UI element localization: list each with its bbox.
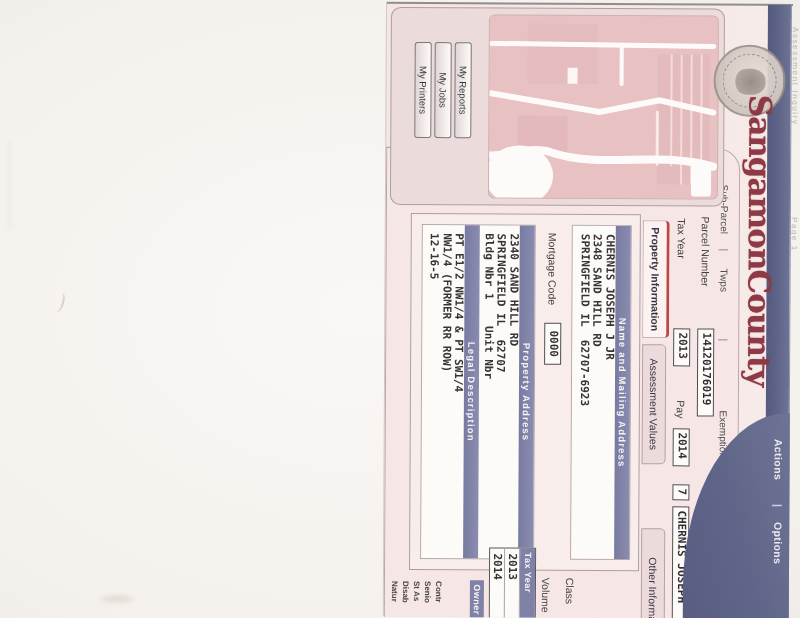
column-label-twps: Twps	[718, 269, 729, 292]
tax-year-table-header: Tax Year	[520, 549, 535, 618]
report-sidebar-window: My Reports My Jobs My Printers	[390, 7, 725, 207]
owner-section-header: Owner	[470, 580, 484, 618]
scanned-document: Assessment Inquiry Page 1 Actions | Opti…	[0, 0, 800, 618]
pay-year-field[interactable]: 2014	[673, 428, 690, 466]
parcel-number-label: Parcel Number	[700, 216, 712, 286]
print-header-page-number: Page 1	[790, 217, 799, 252]
legal-line-3: 12-16-5	[426, 225, 440, 558]
map-graphic	[488, 15, 718, 199]
label-separator: |	[718, 339, 729, 342]
flag-senior: Senio	[422, 581, 433, 603]
flag-disabled: Disab	[400, 581, 411, 603]
my-printers-button[interactable]: My Printers	[414, 42, 432, 138]
mailing-city-line: SPRINGFIELD IL 62707-6923	[576, 226, 590, 559]
property-address-header: Property Address	[518, 226, 535, 559]
exemption-flag-labels: Contr Senio St As Disab Natur	[389, 581, 444, 603]
name-mailing-address-section: Name and Mailing Address CHERNIS JOSEPH …	[570, 225, 632, 560]
my-jobs-button[interactable]: My Jobs	[434, 42, 452, 138]
tax-year-label: Tax Year	[676, 218, 688, 258]
property-information-panel: Name and Mailing Address CHERNIS JOSEPH …	[409, 213, 641, 571]
name-mailing-address-header: Name and Mailing Address	[614, 226, 631, 559]
menu-separator: |	[772, 504, 784, 507]
volume-label: Volume	[540, 578, 552, 613]
pay-label: Pay	[675, 400, 687, 418]
my-reports-button[interactable]: My Reports	[454, 42, 472, 138]
tax-year-table: Tax Year 2013 2014	[489, 547, 536, 618]
actions-menu[interactable]: Actions	[772, 439, 784, 480]
label-separator: |	[719, 249, 730, 252]
tab-assessment-values[interactable]: Assessment Values	[642, 344, 667, 464]
flag-natural: Natur	[389, 581, 400, 603]
county-title: SangamonCounty	[741, 95, 779, 387]
parcel-map-thumbnail[interactable]	[488, 14, 719, 199]
property-street-line: 2340 SAND HILL RD	[505, 225, 519, 558]
mortgage-code-label: Mortgage Code	[546, 233, 558, 305]
tax-year-field[interactable]: 2013	[673, 328, 690, 366]
exemptions-field[interactable]: 7	[672, 484, 689, 500]
tab-property-information[interactable]: Property Information	[642, 220, 670, 338]
options-menu[interactable]: Options	[772, 522, 784, 565]
mortgage-code-field[interactable]: 0000	[544, 323, 561, 365]
tax-year-row-2013[interactable]: 2013	[505, 548, 520, 618]
legal-description-header: Legal Description	[463, 225, 480, 558]
flag-contract: Contr	[433, 581, 444, 603]
assessment-inquiry-page: Assessment Inquiry Page 1 Actions | Opti…	[0, 0, 799, 618]
class-label: Class	[564, 578, 576, 604]
tax-year-row-2014[interactable]: 2014	[490, 548, 505, 618]
tab-other-information[interactable]: Other Information	[641, 528, 666, 618]
flag-st-assessment: St As	[411, 581, 422, 603]
parcel-number-field[interactable]: 14120176019	[697, 328, 714, 416]
property-bldg-unit-line: Bldg Nbr 1 Unit Nbr	[480, 225, 494, 558]
property-address-legal-section: Property Address 2340 SAND HILL RD SPRIN…	[420, 224, 536, 560]
mailing-name-line: CHERNIS JOSEPH J JR	[601, 226, 615, 559]
